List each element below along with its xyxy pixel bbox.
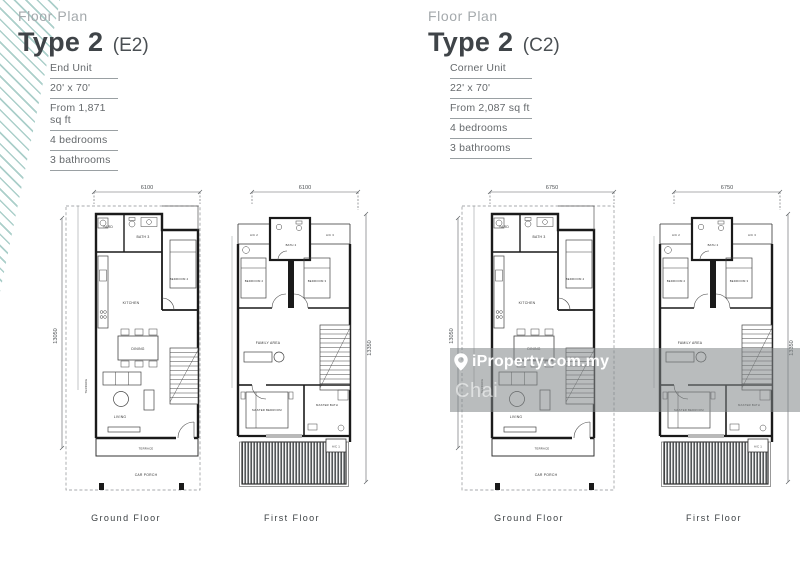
room-label-bath3: BATH 3	[136, 235, 149, 239]
spec-list-e2: End Unit 20' x 70' From 1,871 sq ft 4 be…	[50, 59, 118, 171]
spec-bathrooms: 3 bathrooms	[50, 151, 118, 171]
floor-label-first: First Floor	[208, 513, 376, 523]
room-label-terrace: TERRACE	[139, 447, 154, 451]
room-label-master-bedroom: MASTER BEDROOM	[252, 408, 282, 412]
unit-code-c2: (C2)	[523, 35, 560, 56]
spec-builtup: From 1,871 sq ft	[50, 99, 118, 131]
room-label-terrace-side: TERRACE	[84, 379, 88, 394]
room-label-yard: YARD	[499, 225, 509, 229]
e2-ground-svg: 6100 13050	[42, 180, 210, 528]
spec-list-c2: Corner Unit 22' x 70' From 2,087 sq ft 4…	[450, 59, 532, 159]
room-label-car-porch: CAR PORCH	[135, 473, 158, 477]
location-pin-icon	[454, 353, 468, 371]
eyebrow-c2: Floor Plan	[428, 8, 560, 24]
room-label-ac3: A/C 3	[748, 233, 756, 237]
spec-lot-size: 20' x 70'	[50, 79, 118, 99]
room-label-bedroom3: BEDROOM 3	[730, 279, 749, 283]
floor-plan-e2-first: 6100 13350	[208, 180, 376, 540]
room-label-terrace: TERRACE	[535, 447, 550, 451]
floor-label-ground: Ground Floor	[438, 513, 620, 523]
room-label-bath2: BATH 2	[708, 243, 719, 247]
title-row-c2: Type 2 (C2)	[428, 27, 560, 58]
room-label-bedroom3: BEDROOM 3	[308, 279, 327, 283]
spec-builtup: From 2,087 sq ft	[450, 99, 532, 119]
room-label-bath2: BATH 2	[286, 243, 297, 247]
room-label-yard: YARD	[103, 225, 113, 229]
eyebrow-e2: Floor Plan	[18, 8, 149, 24]
spec-bedrooms: 4 bedrooms	[450, 119, 532, 139]
room-label-ac2: A/C 2	[250, 233, 258, 237]
floor-label-ground: Ground Floor	[42, 513, 210, 523]
room-label-living: LIVING	[510, 415, 523, 419]
room-label-bedroom4: BEDROOM 4	[170, 277, 189, 281]
spec-lot-size: 22' x 70'	[450, 79, 532, 99]
dim-width: 6100	[299, 185, 311, 191]
room-label-ac1: A/C 1	[332, 445, 340, 449]
unit-code-e2: (E2)	[113, 35, 149, 56]
dim-width: 6100	[141, 185, 153, 191]
dim-width: 6750	[546, 185, 558, 191]
watermark-band: iProperty.com.my Chai	[450, 348, 800, 412]
watermark-user: Chai	[455, 380, 498, 403]
room-label-ac1: A/C 1	[754, 445, 762, 449]
room-label-bedroom2: BEDROOM 2	[245, 279, 264, 283]
watermark-brand-row: iProperty.com.my	[454, 353, 609, 371]
title-row-e2: Type 2 (E2)	[18, 27, 149, 58]
floor-label-first: First Floor	[630, 513, 798, 523]
room-label-dining: DINING	[131, 347, 144, 351]
floor-plan-e2-ground: 6100 13050	[42, 180, 210, 540]
room-label-bath3: BATH 3	[532, 235, 545, 239]
spec-bathrooms: 3 bathrooms	[450, 139, 532, 159]
watermark-brand: iProperty.com.my	[472, 353, 609, 371]
dim-height: 13350	[367, 340, 373, 356]
room-label-car-porch: CAR PORCH	[535, 473, 558, 477]
room-label-family-area: FAMILY AREA	[256, 341, 281, 345]
room-label-kitchen: KITCHEN	[123, 301, 140, 305]
dim-height: 13050	[53, 328, 59, 344]
spec-bedrooms: 4 bedrooms	[50, 131, 118, 151]
room-label-kitchen: KITCHEN	[519, 301, 536, 305]
unit-header-c2: Floor Plan Type 2 (C2)	[428, 8, 560, 58]
room-label-family-area: FAMILY AREA	[678, 341, 703, 345]
e2-first-svg: 6100 13350	[208, 180, 376, 528]
room-label-master-bath: MASTER BATH	[316, 403, 338, 407]
room-label-living: LIVING	[114, 415, 127, 419]
unit-header-e2: Floor Plan Type 2 (E2)	[18, 8, 149, 58]
spec-unit-type: Corner Unit	[450, 59, 532, 79]
dim-height: 13050	[449, 328, 455, 344]
room-label-ac3: A/C 3	[326, 233, 334, 237]
dim-width: 6750	[721, 185, 733, 191]
room-label-ac2: A/C 2	[672, 233, 680, 237]
room-label-bedroom2: BEDROOM 2	[667, 279, 686, 283]
unit-title-e2: Type 2	[18, 27, 103, 57]
spec-unit-type: End Unit	[50, 59, 118, 79]
unit-title-c2: Type 2	[428, 27, 513, 57]
room-label-bedroom4: BEDROOM 4	[566, 277, 585, 281]
